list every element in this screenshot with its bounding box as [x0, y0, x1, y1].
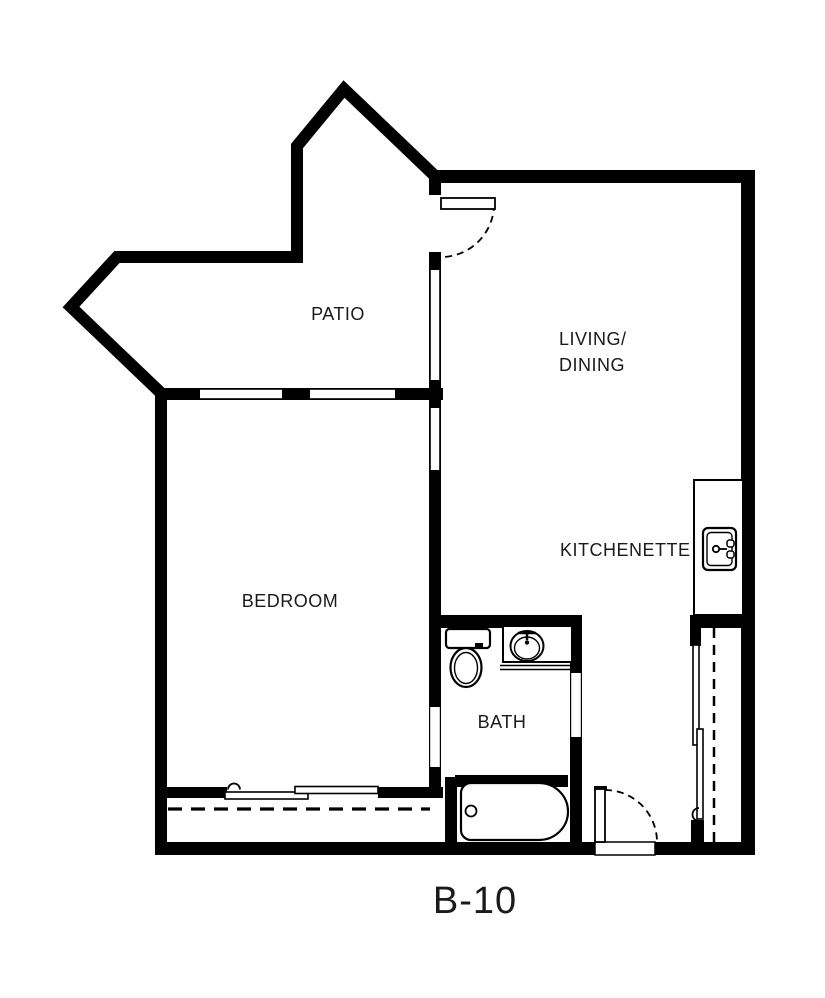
tub-drain	[466, 806, 477, 817]
living-wall-window-2	[431, 408, 439, 470]
entry-threshold	[595, 842, 655, 855]
bottom-exterior-wall-left	[155, 842, 595, 855]
entry-door-swing-arc	[605, 790, 657, 842]
tub-alcove-left-wall	[445, 777, 457, 843]
patio-window-1	[200, 390, 282, 398]
bedroom-window-wall-right	[378, 787, 443, 798]
patio-wall-outline	[71, 89, 435, 394]
bath-fixtures	[446, 626, 572, 840]
closet-top-jamb	[690, 628, 701, 646]
bath-door-opening	[571, 673, 581, 737]
bedroom-window-wall-left	[166, 787, 227, 798]
kitchenette-area	[694, 480, 743, 615]
walls	[71, 89, 755, 855]
entry-door-group	[595, 789, 657, 855]
openings-and-windows	[200, 195, 581, 767]
sliding-window-handle	[228, 784, 240, 790]
bedroom-left-wall	[155, 388, 167, 855]
bathroom-sink-icon	[511, 631, 544, 661]
bath-left-opening	[430, 707, 440, 767]
closet-area	[693, 628, 714, 842]
kitchenette-closet-wall	[690, 615, 755, 628]
room-label-living-line1: LIVING/	[559, 329, 627, 349]
bedroom-top-wall	[155, 388, 443, 400]
patio-window-2	[310, 390, 395, 398]
floor-plan-drawing: PATIO LIVING/ DINING KITCHENETTE BEDROOM…	[0, 0, 825, 998]
patio-door-leaf	[441, 198, 495, 209]
room-label-bedroom: BEDROOM	[242, 591, 339, 611]
top-exterior-wall	[429, 170, 755, 183]
kitchen-sink-icon	[703, 528, 736, 570]
sliding-window-panel-2	[295, 787, 378, 794]
living-wall-window-1	[431, 270, 439, 380]
room-label-kitchenette: KITCHENETTE	[560, 540, 691, 560]
bottom-exterior-wall-right	[655, 842, 755, 855]
closet-bottom-jamb	[691, 820, 704, 843]
room-label-patio: PATIO	[311, 304, 365, 324]
living-left-wall	[429, 170, 441, 787]
unit-label: B-10	[433, 880, 517, 922]
patio-door-swing-arc	[441, 204, 494, 257]
toilet-icon	[446, 629, 490, 687]
sliding-closet-doors	[693, 645, 703, 821]
floor-plan-b10: PATIO LIVING/ DINING KITCHENETTE BEDROOM…	[0, 0, 825, 998]
bathtub-icon	[461, 783, 568, 840]
patio-door-group	[441, 198, 495, 257]
entry-door-leaf	[595, 789, 605, 842]
room-label-living-line2: DINING	[559, 355, 625, 375]
room-label-bath: BATH	[478, 712, 527, 732]
patio-door-opening	[429, 195, 442, 252]
